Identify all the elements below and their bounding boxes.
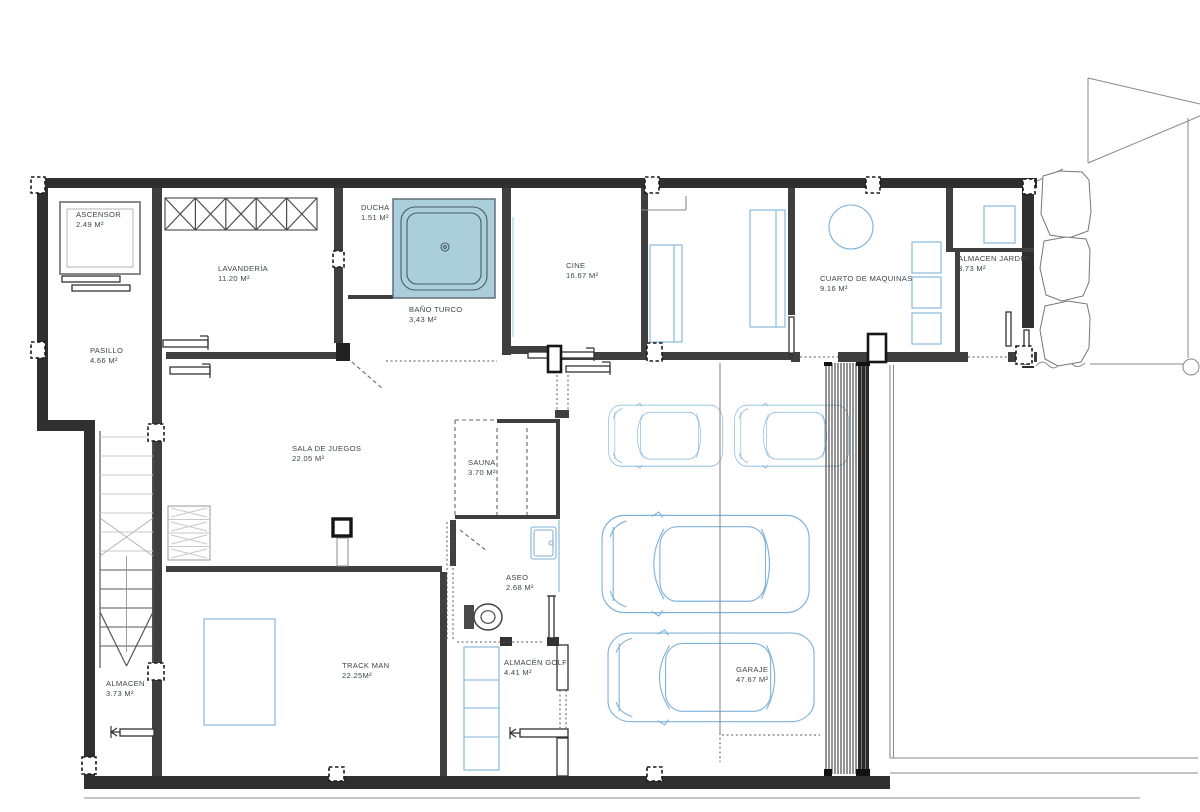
room-label-cine: CINE16.67 M² [566,261,598,281]
golf-storage-shelves [464,647,499,770]
trackman-cabinet [168,506,210,560]
room-label-almacen-jardin: ALMACEN JARDIN3.73 M² [958,254,1028,274]
staircase [100,431,153,668]
room-label-track-man: TRACK MAN22.25M² [342,661,389,681]
floor-plan-drawing [0,0,1200,812]
room-label-pasillo: PASILLO4.66 M² [90,346,123,366]
shower-tray [393,199,495,298]
room-label-aseo: ASEO2.68 M² [506,573,534,593]
grid-bubble-icon [1183,359,1199,375]
aseo-sink [531,520,559,592]
outer-walls [37,178,1037,789]
room-label-sala-de-juegos: SALA DE JUEGOS22.05 M² [292,444,361,464]
column-shaft [333,519,351,566]
garage-slats [824,359,894,777]
toilet-icon [464,604,502,630]
room-label-sauna: SAUNA3.70 M² [468,458,496,478]
room-label-ascensor: ASCENSOR2.49 M² [76,210,121,230]
golf-mat [204,619,275,725]
cars [602,403,848,725]
room-label-cuarto-de-maquinas: CUARTO DE MAQUINAS9.16 M² [820,274,912,294]
room-label-ducha: DUCHA1.51 M² [361,203,390,223]
room-label-lavanderia: LAVANDERÍA11.20 M² [218,264,268,284]
column-markers [31,177,1035,781]
media-room-furniture [650,210,785,342]
room-label-garaje: GARAJE47.67 M² [736,665,768,685]
laundry-closet-hatch [165,198,317,230]
room-label-bano-turco: BAÑO TURCO3,43 M² [409,305,463,325]
room-label-almacen: ALMACEN3.73 M² [106,679,145,699]
room-label-almacen-golf: ALMACÉN GOLF4.41 M² [504,658,567,678]
floor-plan-canvas: ASCENSOR2.49 M² LAVANDERÍA11.20 M² DUCHA… [0,0,1200,812]
boulders [1040,171,1091,366]
